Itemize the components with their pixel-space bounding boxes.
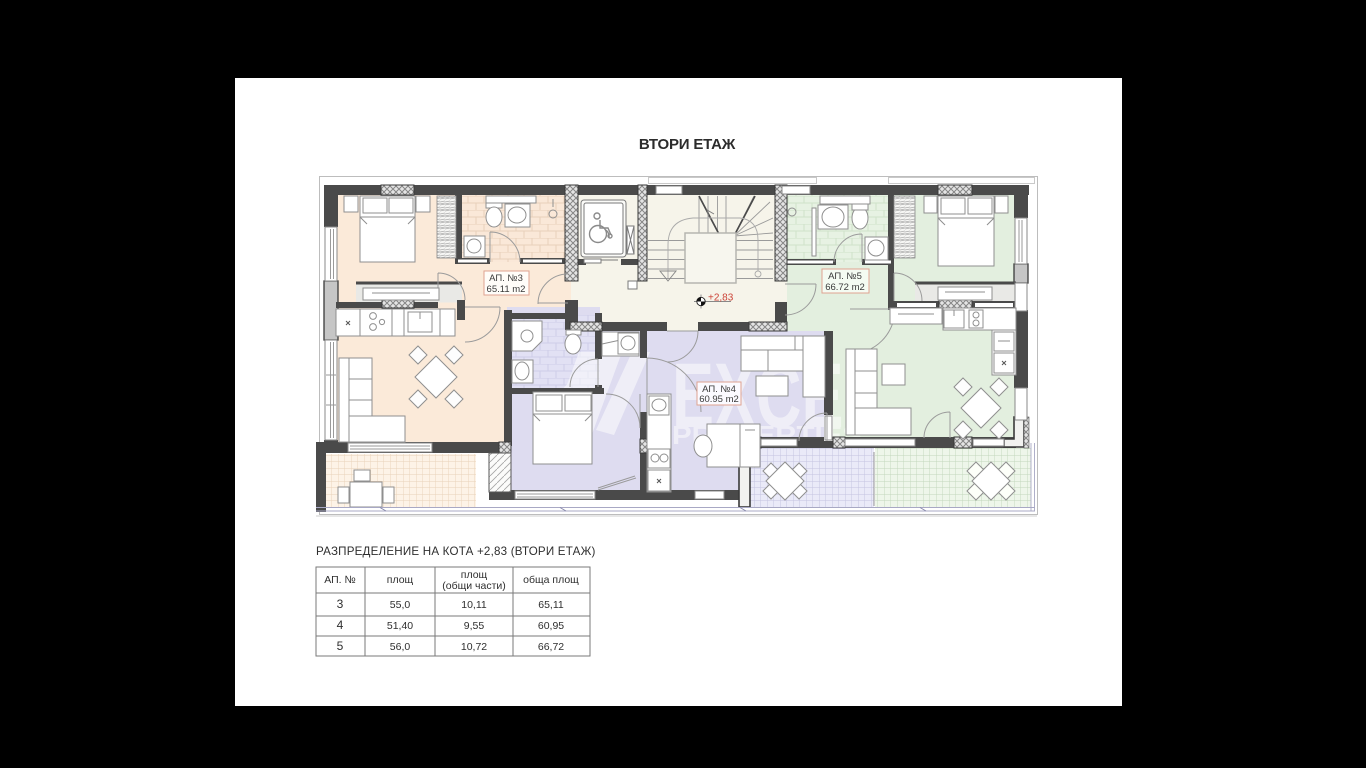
svg-text:9,55: 9,55 [464,620,485,632]
svg-text:5: 5 [337,639,344,653]
svg-text:65,11: 65,11 [538,599,564,611]
svg-text:66.72 m2: 66.72 m2 [825,282,865,293]
svg-text:4: 4 [337,618,344,632]
svg-text:обща площ: обща площ [523,574,579,586]
svg-text:площ: площ [387,574,414,586]
svg-text:+2,83: +2,83 [708,293,734,304]
svg-text:60,95: 60,95 [538,620,564,632]
svg-text:66,72: 66,72 [538,641,564,653]
svg-text:55,0: 55,0 [390,599,411,611]
svg-text:РАЗПРЕДЕЛЕНИЕ НА КОТА +2,83 (В: РАЗПРЕДЕЛЕНИЕ НА КОТА +2,83 (ВТОРИ ЕТАЖ) [316,545,596,558]
svg-text:АП. №3: АП. №3 [489,273,523,284]
svg-text:(общи части): (общи части) [442,580,506,592]
svg-text:АП. №: АП. № [324,574,356,586]
svg-text:10,72: 10,72 [461,641,487,653]
svg-text:60.95 m2: 60.95 m2 [699,394,739,405]
svg-text:65.11 m2: 65.11 m2 [487,284,526,295]
svg-text:АП. №5: АП. №5 [828,271,862,282]
svg-text:10,11: 10,11 [461,599,487,611]
svg-text:51,40: 51,40 [387,620,413,632]
svg-text:3: 3 [337,597,344,611]
svg-text:ВТОРИ ЕТАЖ: ВТОРИ ЕТАЖ [639,136,736,153]
svg-text:56,0: 56,0 [390,641,411,653]
